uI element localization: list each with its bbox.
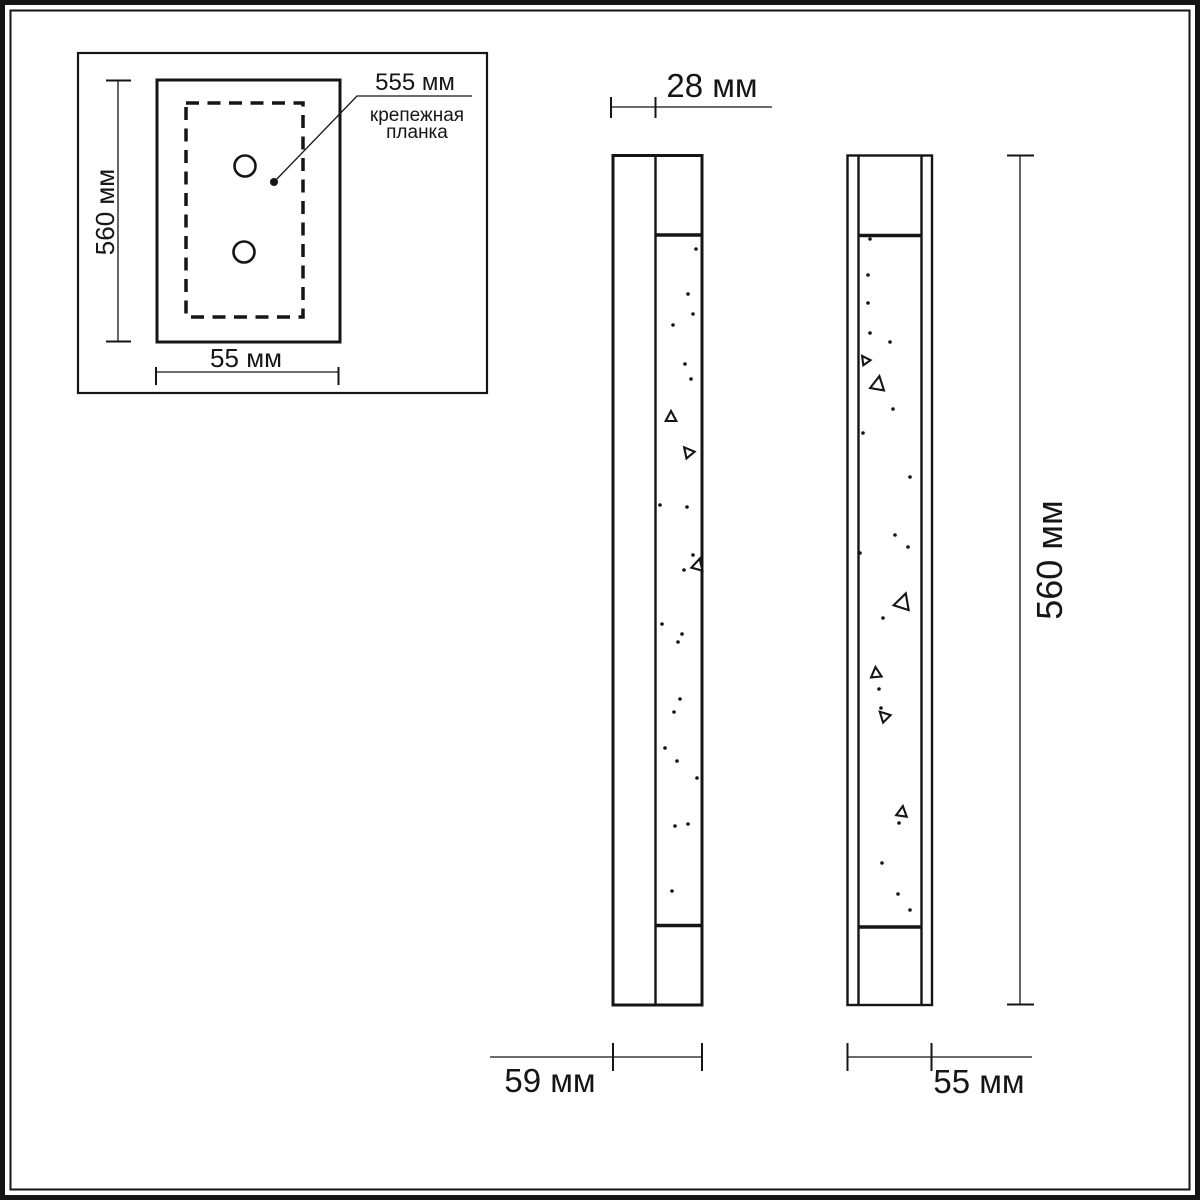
front-view-sparkles (858, 237, 913, 912)
front-view: 560 мм 55 мм (847, 155, 1070, 1100)
side-view-total-depth-label: 59 мм (504, 1062, 595, 1099)
side-view-plate-depth-label: 28 мм (666, 67, 757, 104)
front-view-width-dimension: 55 мм (847, 1043, 1032, 1100)
mounting-hole-bottom (234, 242, 255, 263)
side-view-sparkles (658, 247, 705, 893)
front-view-height-label: 560 мм (1029, 500, 1070, 620)
mounting-detail-inset: 555 мм крепежная планка 560 мм 55 мм (78, 53, 487, 393)
inset-height-label: 560 мм (90, 169, 120, 255)
side-view-outline (613, 156, 702, 1006)
side-view-plate-depth-dimension: 28 мм (611, 67, 772, 118)
callout-dim-label: 555 мм (375, 69, 455, 96)
side-view: 28 мм 59 мм (490, 67, 772, 1099)
mounting-hole-top (235, 156, 256, 177)
front-view-width-label: 55 мм (933, 1063, 1024, 1100)
drawing-sheet: 555 мм крепежная планка 560 мм 55 мм (0, 0, 1200, 1200)
callout-label-line2: планка (386, 122, 448, 143)
front-view-outline (848, 156, 933, 1006)
inset-width-label: 55 мм (210, 343, 282, 373)
dimension-drawing: 555 мм крепежная планка 560 мм 55 мм (0, 0, 1200, 1200)
side-view-total-depth-dimension: 59 мм (490, 1043, 703, 1099)
front-view-height-dimension: 560 мм (1007, 155, 1070, 1005)
